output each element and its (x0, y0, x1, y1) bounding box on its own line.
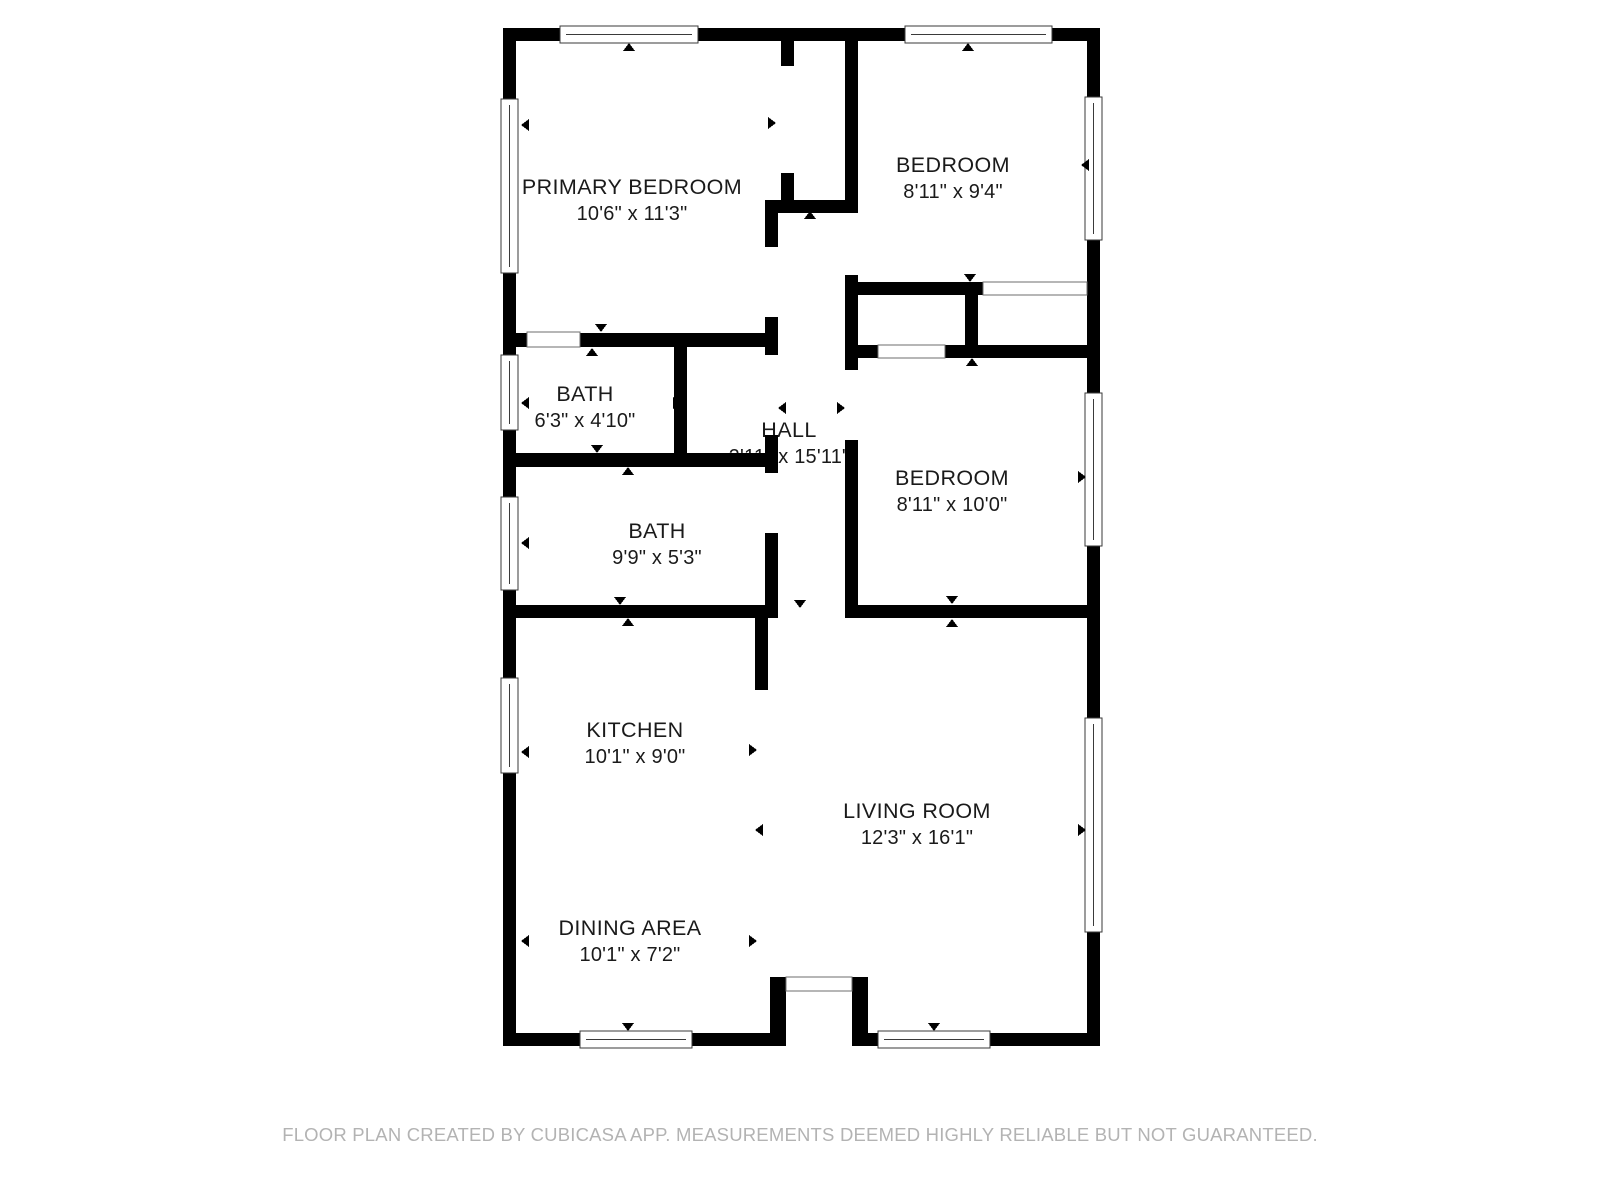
window-bath1-left (501, 355, 518, 430)
room-name: BEDROOM (896, 154, 1010, 178)
window-primary-left (501, 99, 518, 273)
room-dims: 12'3" x 16'1" (843, 827, 991, 849)
window-living-right (1085, 718, 1102, 932)
entry-door (786, 977, 852, 991)
room-name: BATH (535, 383, 636, 407)
room-label-primary-bedroom: PRIMARY BEDROOM 10'6" x 11'3" (522, 176, 742, 225)
window-kitchen-left (501, 678, 518, 773)
closet-b-door (983, 282, 1087, 295)
floorplan-drawing (0, 0, 1600, 1200)
room-dims: 10'1" x 7'2" (559, 944, 702, 966)
room-label-dining-area: DINING AREA 10'1" x 7'2" (559, 917, 702, 966)
room-dims: 6'3" x 4'10" (535, 410, 636, 432)
window-primary-top (560, 26, 698, 43)
window-bath2-left (501, 497, 518, 590)
window-dining-bottom (580, 1031, 692, 1048)
room-name: BATH (612, 520, 702, 544)
room-dims: 9'9" x 5'3" (612, 547, 702, 569)
floorplan-page: PRIMARY BEDROOM 10'6" x 11'3" BEDROOM 8'… (0, 0, 1600, 1200)
window-bedroom2-right (1085, 393, 1102, 546)
window-living-bottom (878, 1031, 990, 1048)
room-label-bedroom-1: BEDROOM 8'11" x 9'4" (896, 154, 1010, 203)
room-name: LIVING ROOM (843, 800, 991, 824)
room-name: BEDROOM (895, 467, 1009, 491)
room-label-bath-2: BATH 9'9" x 5'3" (612, 520, 702, 569)
room-label-kitchen: KITCHEN 10'1" x 9'0" (585, 719, 686, 768)
room-name: DINING AREA (559, 917, 702, 941)
room-dims: 8'11" x 9'4" (896, 181, 1010, 203)
room-dims: 8'11" x 10'0" (895, 494, 1009, 516)
room-name: KITCHEN (585, 719, 686, 743)
footer-disclaimer: FLOOR PLAN CREATED BY CUBICASA APP. MEAS… (282, 1124, 1318, 1146)
window-bedroom1-top (905, 26, 1052, 43)
room-name: PRIMARY BEDROOM (522, 176, 742, 200)
room-dims: 2'11" x 15'11" (729, 446, 850, 468)
room-dims: 10'6" x 11'3" (522, 203, 742, 225)
room-label-hall: HALL 2'11" x 15'11" (729, 419, 850, 468)
room-name: HALL (729, 419, 850, 443)
room-label-bedroom-2: BEDROOM 8'11" x 10'0" (895, 467, 1009, 516)
room-label-living-room: LIVING ROOM 12'3" x 16'1" (843, 800, 991, 849)
room-label-bath-1: BATH 6'3" x 4'10" (535, 383, 636, 432)
room-dims: 10'1" x 9'0" (585, 746, 686, 768)
bath1-door (527, 332, 580, 347)
closet-a-door (878, 345, 945, 358)
window-bedroom1-right (1085, 97, 1102, 240)
